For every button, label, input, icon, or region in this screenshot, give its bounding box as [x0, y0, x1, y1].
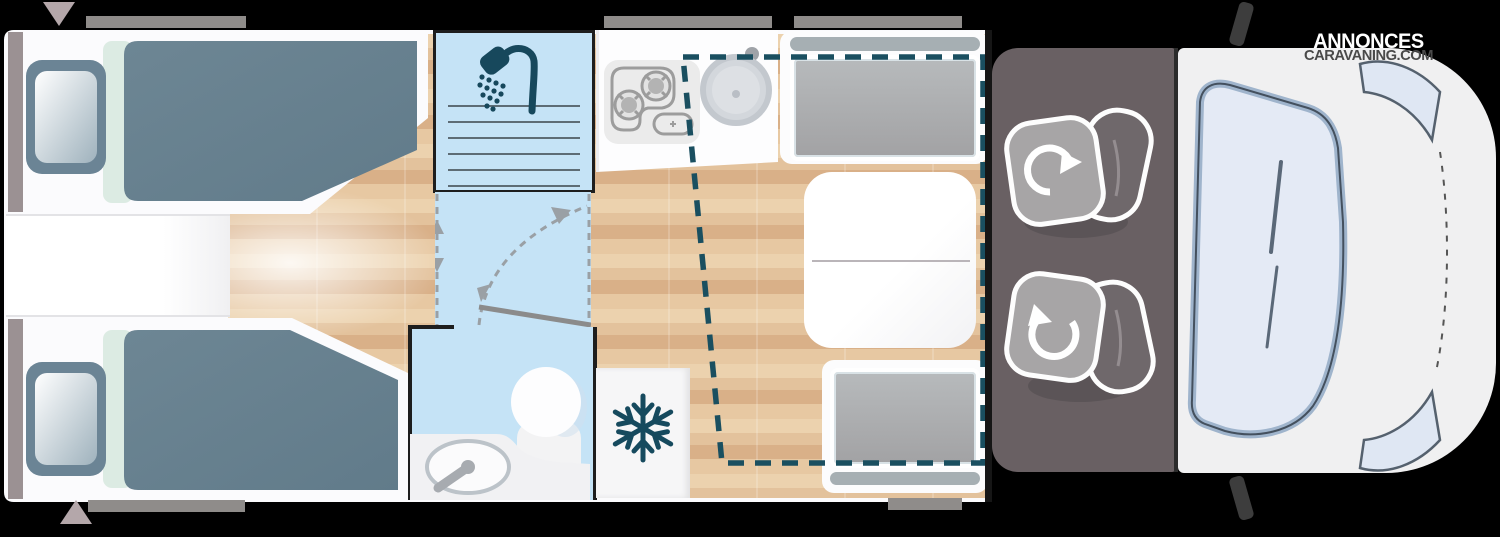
twin-bed-top [4, 30, 430, 214]
rear-wall-strip-bottom [8, 319, 23, 499]
entry-door-marker-bottom [60, 500, 92, 524]
arrow-up-icon [435, 220, 444, 234]
window-marker [88, 500, 245, 512]
pillow-inner [35, 71, 97, 163]
cab-side-window-bottom [1352, 384, 1452, 476]
wing-mirror-top [1228, 1, 1255, 47]
washbasin [410, 424, 590, 500]
between-beds-step [6, 214, 230, 317]
arrow-down-icon [435, 258, 444, 272]
cab-partition-wall [985, 30, 992, 502]
watermark: ANNONCES CARAVANING.COM [1296, 31, 1441, 63]
pillow-inner [35, 373, 97, 465]
motorhome-floorplan: ANNONCES CARAVANING.COM [0, 0, 1500, 537]
sliding-door-line [479, 307, 591, 325]
swivel-seat-driver [998, 100, 1163, 250]
rear-wall-strip-top [8, 32, 23, 212]
washroom-wall-segment [408, 325, 454, 329]
bed-duvet [124, 41, 417, 201]
window-marker [794, 16, 962, 28]
cab-side-window-top [1352, 56, 1452, 148]
swivel-seat-passenger [998, 258, 1163, 408]
washroom [408, 327, 597, 500]
window-marker [888, 498, 962, 510]
twin-bed-bottom [4, 318, 430, 502]
shower-spray-dots [477, 74, 505, 111]
burner-front [615, 91, 643, 119]
drain-dot [461, 460, 475, 474]
watermark-line2: CARAVANING.COM [1297, 48, 1439, 63]
door-markings [435, 192, 591, 329]
washroom-corridor [435, 192, 591, 329]
window-marker [86, 16, 246, 28]
seat-cushion [1003, 114, 1106, 228]
hood-contour-line [1428, 150, 1468, 375]
entry-door-marker-top [43, 2, 75, 26]
seat-cushion [1003, 270, 1106, 384]
wing-mirror-bottom [1228, 475, 1255, 521]
window-marker [604, 16, 772, 28]
windshield [1184, 72, 1364, 444]
shower-head-icon [474, 37, 554, 125]
drop-down-bed-outline [665, 40, 995, 480]
shower-room [433, 30, 595, 193]
